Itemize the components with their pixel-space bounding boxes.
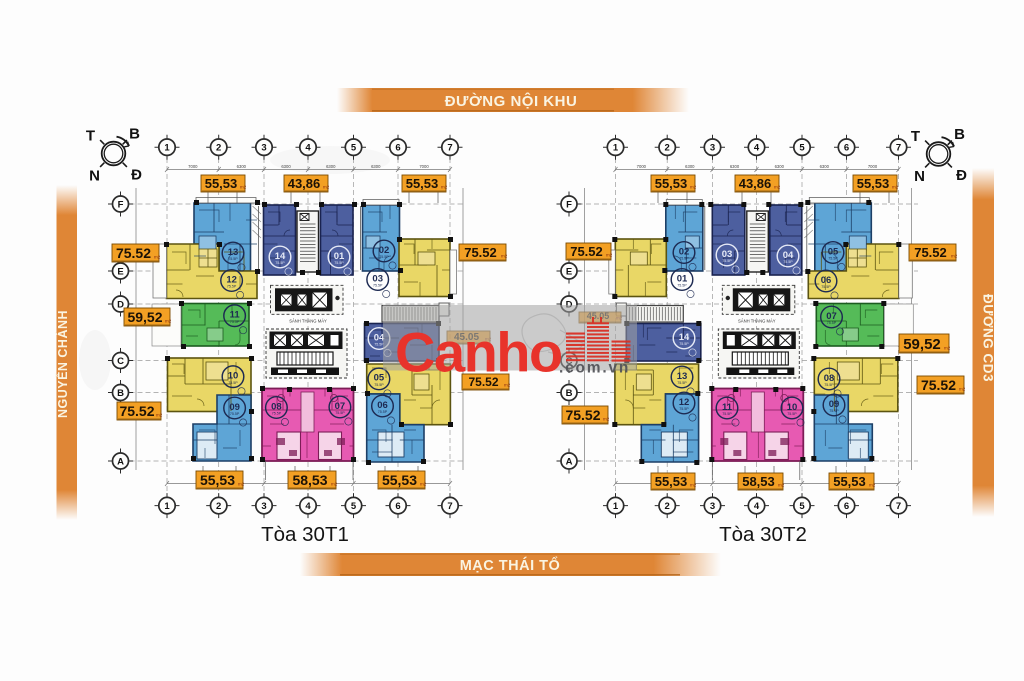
svg-text:7: 7 <box>896 143 901 154</box>
svg-text:7: 7 <box>447 501 452 512</box>
svg-text:55,53: 55,53 <box>655 474 688 489</box>
svg-text:MẠC THÁI TỔ: MẠC THÁI TỔ <box>460 556 561 574</box>
svg-text:55,53: 55,53 <box>857 176 890 191</box>
svg-text:75.5P: 75.5P <box>275 261 285 265</box>
svg-text:5: 5 <box>799 143 805 154</box>
svg-text:75.5P: 75.5P <box>379 255 389 259</box>
svg-text:09: 09 <box>229 402 240 413</box>
svg-text:.com.vn: .com.vn <box>559 360 630 377</box>
svg-text:75.5P: 75.5P <box>334 261 344 265</box>
svg-text:6: 6 <box>395 143 400 154</box>
svg-text:75.5P: 75.5P <box>828 257 838 261</box>
svg-text:06: 06 <box>377 400 388 411</box>
svg-text:75.5P: 75.5P <box>827 321 837 325</box>
svg-text:Canho: Canho <box>395 321 562 384</box>
svg-text:B: B <box>129 126 140 143</box>
svg-text:Tòa 30T1: Tòa 30T1 <box>261 523 349 546</box>
svg-text:E: E <box>117 266 123 277</box>
svg-text:12: 12 <box>226 274 237 285</box>
svg-text:75.5P: 75.5P <box>228 257 238 261</box>
svg-text:m2: m2 <box>606 253 613 258</box>
svg-text:6300: 6300 <box>326 164 336 169</box>
svg-text:m2: m2 <box>238 482 245 487</box>
svg-text:75.5P: 75.5P <box>374 343 384 347</box>
svg-text:6300: 6300 <box>685 164 695 169</box>
svg-text:75.5P: 75.5P <box>679 342 689 346</box>
svg-text:43,86: 43,86 <box>288 176 321 191</box>
svg-text:7: 7 <box>447 143 452 154</box>
svg-text:01: 01 <box>334 251 345 262</box>
svg-text:m2: m2 <box>690 185 697 190</box>
svg-text:75.5P: 75.5P <box>228 381 238 385</box>
svg-text:B: B <box>566 388 573 399</box>
svg-text:m2: m2 <box>331 482 338 487</box>
svg-text:75.5P: 75.5P <box>230 320 240 324</box>
svg-text:B: B <box>117 388 124 399</box>
svg-text:75.5P: 75.5P <box>829 409 839 413</box>
svg-text:F: F <box>566 199 572 210</box>
svg-text:N: N <box>914 168 925 185</box>
svg-text:75.5P: 75.5P <box>824 383 834 387</box>
svg-text:07: 07 <box>335 401 346 412</box>
svg-text:m2: m2 <box>869 483 876 488</box>
svg-text:4: 4 <box>754 143 760 154</box>
svg-text:5: 5 <box>351 143 357 154</box>
svg-text:14: 14 <box>679 332 690 343</box>
svg-text:m2: m2 <box>323 185 330 190</box>
svg-text:Tòa 30T2: Tòa 30T2 <box>719 523 807 546</box>
svg-text:m2: m2 <box>240 185 247 190</box>
svg-text:75.5P: 75.5P <box>722 412 732 416</box>
svg-text:SẢNH THANG MÁY: SẢNH THANG MÁY <box>738 319 776 324</box>
svg-text:43,86: 43,86 <box>739 176 772 191</box>
svg-text:75.5P: 75.5P <box>821 285 831 289</box>
svg-text:75.5P: 75.5P <box>335 411 345 415</box>
svg-text:m2: m2 <box>156 413 163 418</box>
svg-text:05: 05 <box>374 373 385 384</box>
svg-text:12: 12 <box>679 397 690 408</box>
svg-text:08: 08 <box>824 373 835 384</box>
svg-text:01: 01 <box>677 273 688 284</box>
svg-text:55,53: 55,53 <box>655 176 688 191</box>
svg-text:Đ: Đ <box>956 167 967 184</box>
svg-text:55,53: 55,53 <box>833 474 866 489</box>
svg-text:4: 4 <box>305 501 311 512</box>
svg-text:75.5P: 75.5P <box>783 260 793 264</box>
svg-text:1: 1 <box>613 501 619 512</box>
svg-text:75.5P: 75.5P <box>230 412 240 416</box>
svg-text:7000: 7000 <box>868 164 878 169</box>
svg-text:m2: m2 <box>441 185 448 190</box>
svg-text:6: 6 <box>395 501 400 512</box>
svg-text:7000: 7000 <box>419 164 429 169</box>
svg-text:14: 14 <box>275 251 286 262</box>
svg-text:4: 4 <box>754 501 760 512</box>
svg-text:08: 08 <box>271 401 282 412</box>
svg-text:13: 13 <box>677 371 688 382</box>
svg-text:3: 3 <box>710 143 715 154</box>
svg-text:6300: 6300 <box>371 164 381 169</box>
svg-text:m2: m2 <box>944 346 951 351</box>
svg-text:NGUYỄN CHÁNH: NGUYỄN CHÁNH <box>55 310 70 418</box>
svg-text:m2: m2 <box>165 319 172 324</box>
svg-text:75.5P: 75.5P <box>374 383 384 387</box>
svg-text:m2: m2 <box>951 254 958 259</box>
svg-text:3: 3 <box>710 501 715 512</box>
svg-text:6: 6 <box>844 501 849 512</box>
svg-text:ĐƯỜNG NỘI KHU: ĐƯỜNG NỘI KHU <box>445 92 578 110</box>
svg-text:N: N <box>89 168 100 185</box>
svg-text:B: B <box>954 126 965 143</box>
svg-text:m2: m2 <box>501 254 508 259</box>
svg-text:ĐƯỜNG CD3: ĐƯỜNG CD3 <box>981 294 996 382</box>
svg-text:55,53: 55,53 <box>200 472 235 488</box>
svg-text:2: 2 <box>665 501 670 512</box>
svg-text:T: T <box>911 128 920 145</box>
svg-text:10: 10 <box>228 371 239 382</box>
svg-text:03: 03 <box>722 249 733 260</box>
svg-text:6300: 6300 <box>237 164 247 169</box>
svg-text:5: 5 <box>799 501 805 512</box>
svg-text:7000: 7000 <box>188 164 198 169</box>
svg-text:07: 07 <box>826 311 837 322</box>
svg-text:2: 2 <box>665 143 670 154</box>
svg-text:m2: m2 <box>892 185 899 190</box>
svg-text:6300: 6300 <box>775 164 785 169</box>
svg-text:02: 02 <box>379 245 390 256</box>
svg-text:F: F <box>118 199 124 210</box>
svg-text:58,53: 58,53 <box>742 474 775 489</box>
svg-text:m2: m2 <box>778 483 785 488</box>
svg-text:75.5P: 75.5P <box>677 381 687 385</box>
svg-text:75.52: 75.52 <box>914 245 947 260</box>
svg-text:3: 3 <box>261 501 266 512</box>
svg-text:03: 03 <box>372 273 383 284</box>
svg-text:m2: m2 <box>690 483 697 488</box>
svg-text:A: A <box>117 456 124 467</box>
svg-text:C: C <box>117 356 124 367</box>
svg-text:6300: 6300 <box>820 164 830 169</box>
svg-text:75.5P: 75.5P <box>677 284 687 288</box>
svg-text:6300: 6300 <box>281 164 291 169</box>
svg-text:1: 1 <box>164 501 170 512</box>
svg-text:59,52: 59,52 <box>903 336 941 353</box>
svg-text:05: 05 <box>828 246 839 257</box>
svg-text:75.5P: 75.5P <box>272 412 282 416</box>
svg-text:75.5P: 75.5P <box>378 410 388 414</box>
svg-text:m2: m2 <box>774 185 781 190</box>
svg-text:06: 06 <box>821 275 832 286</box>
svg-text:2: 2 <box>216 501 221 512</box>
svg-text:D: D <box>117 299 124 310</box>
svg-text:75.5P: 75.5P <box>227 285 237 289</box>
svg-text:5: 5 <box>351 501 357 512</box>
svg-text:75.52: 75.52 <box>921 377 956 393</box>
svg-text:T: T <box>86 128 95 145</box>
svg-text:55,53: 55,53 <box>382 472 417 488</box>
svg-text:75.52: 75.52 <box>570 244 603 259</box>
svg-text:59,52: 59,52 <box>127 309 162 325</box>
svg-text:58,53: 58,53 <box>292 472 327 488</box>
svg-text:75.5P: 75.5P <box>679 257 689 261</box>
svg-text:Đ: Đ <box>131 167 142 184</box>
svg-text:75.5P: 75.5P <box>373 284 383 288</box>
svg-text:75.52: 75.52 <box>119 403 154 419</box>
svg-text:09: 09 <box>829 399 840 410</box>
svg-text:m2: m2 <box>154 255 161 260</box>
svg-text:75.5P: 75.5P <box>787 412 797 416</box>
svg-text:55,53: 55,53 <box>406 176 439 191</box>
svg-text:4: 4 <box>305 143 311 154</box>
svg-text:75.5P: 75.5P <box>722 259 732 263</box>
svg-text:7: 7 <box>896 501 901 512</box>
svg-text:m2: m2 <box>603 417 610 422</box>
svg-text:SẢNH THANG MÁY: SẢNH THANG MÁY <box>289 319 327 324</box>
svg-text:E: E <box>566 266 572 277</box>
svg-text:3: 3 <box>261 143 266 154</box>
svg-text:11: 11 <box>722 402 733 413</box>
svg-text:04: 04 <box>783 250 794 261</box>
svg-text:m2: m2 <box>959 387 966 392</box>
svg-text:75.52: 75.52 <box>565 407 600 423</box>
svg-text:m2: m2 <box>420 482 427 487</box>
svg-text:1: 1 <box>613 143 619 154</box>
svg-text:6: 6 <box>844 143 849 154</box>
svg-text:7000: 7000 <box>637 164 647 169</box>
svg-text:2: 2 <box>216 143 221 154</box>
svg-text:75.5P: 75.5P <box>679 407 689 411</box>
svg-text:75.52: 75.52 <box>116 245 151 261</box>
svg-text:11: 11 <box>230 310 241 321</box>
svg-text:02: 02 <box>679 246 690 257</box>
svg-text:A: A <box>566 456 573 467</box>
svg-text:13: 13 <box>228 247 239 258</box>
svg-text:55,53: 55,53 <box>205 176 238 191</box>
svg-text:10: 10 <box>787 402 798 413</box>
svg-text:75.52: 75.52 <box>464 245 497 260</box>
svg-text:6300: 6300 <box>730 164 740 169</box>
svg-text:1: 1 <box>164 143 170 154</box>
